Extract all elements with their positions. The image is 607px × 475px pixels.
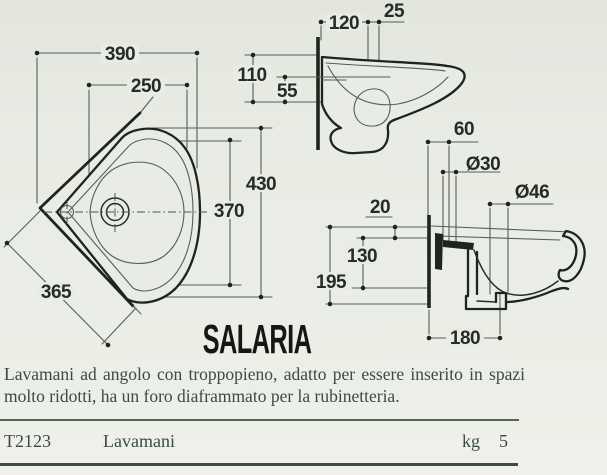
dim-label-plan-depth: 430 bbox=[246, 174, 276, 195]
basin-profile-outline bbox=[322, 57, 465, 153]
rim-back-edge-line bbox=[431, 226, 571, 232]
dim-label-side-lip: 55 bbox=[277, 81, 298, 102]
dim-label-plan-width: 390 bbox=[105, 44, 135, 65]
bowl-interior-curve bbox=[474, 250, 558, 295]
front-rim-section bbox=[559, 231, 585, 281]
dim-label-plan-inner-width: 250 bbox=[131, 76, 161, 97]
rim-section-cut bbox=[443, 240, 474, 250]
dim-label-tap-hole: 25 bbox=[384, 1, 405, 22]
weight-unit-label: kg bbox=[462, 431, 480, 452]
wall-edge-tip-top bbox=[140, 97, 153, 113]
product-name: Lavamani bbox=[103, 431, 175, 452]
trap-inner-line bbox=[477, 301, 496, 302]
plan-view: 390 250 430 370 365 bbox=[4, 44, 280, 347]
product-description: Lavamani ad angolo con troppopieno, adat… bbox=[4, 364, 525, 407]
product-title: SALARIA bbox=[202, 320, 311, 358]
technical-drawing: 390 250 430 370 365 bbox=[0, 0, 607, 352]
dim-label-plan-side: 365 bbox=[41, 282, 72, 303]
dim-label-side-height: 110 bbox=[237, 65, 266, 86]
product-table-row: T2123 Lavamani kg 5 bbox=[0, 431, 519, 457]
dim-label-plan-inner-depth: 370 bbox=[214, 201, 244, 222]
table-rule-bottom bbox=[0, 463, 518, 466]
dim-label-fix-gap: 20 bbox=[370, 197, 390, 218]
dim-label-drain-height: 130 bbox=[347, 246, 377, 267]
dim-label-floor-offset: 180 bbox=[450, 328, 480, 349]
side-view: 120 25 110 55 bbox=[233, 1, 465, 153]
table-rule-top bbox=[0, 419, 519, 421]
basin-back-section-cut bbox=[435, 233, 443, 270]
dim-label-section-height: 195 bbox=[316, 272, 347, 293]
product-code: T2123 bbox=[4, 431, 51, 452]
weight-value: 5 bbox=[499, 431, 508, 452]
dim-label-drain-offset: 60 bbox=[454, 119, 474, 140]
dim-label-drain-diameter: Ø30 bbox=[466, 154, 500, 175]
catalog-page: { "product": { "title": "SALARIA", "desc… bbox=[0, 0, 607, 475]
dim-label-trap-diameter: Ø46 bbox=[515, 182, 549, 203]
dim-label-tap-offset: 120 bbox=[329, 13, 359, 34]
